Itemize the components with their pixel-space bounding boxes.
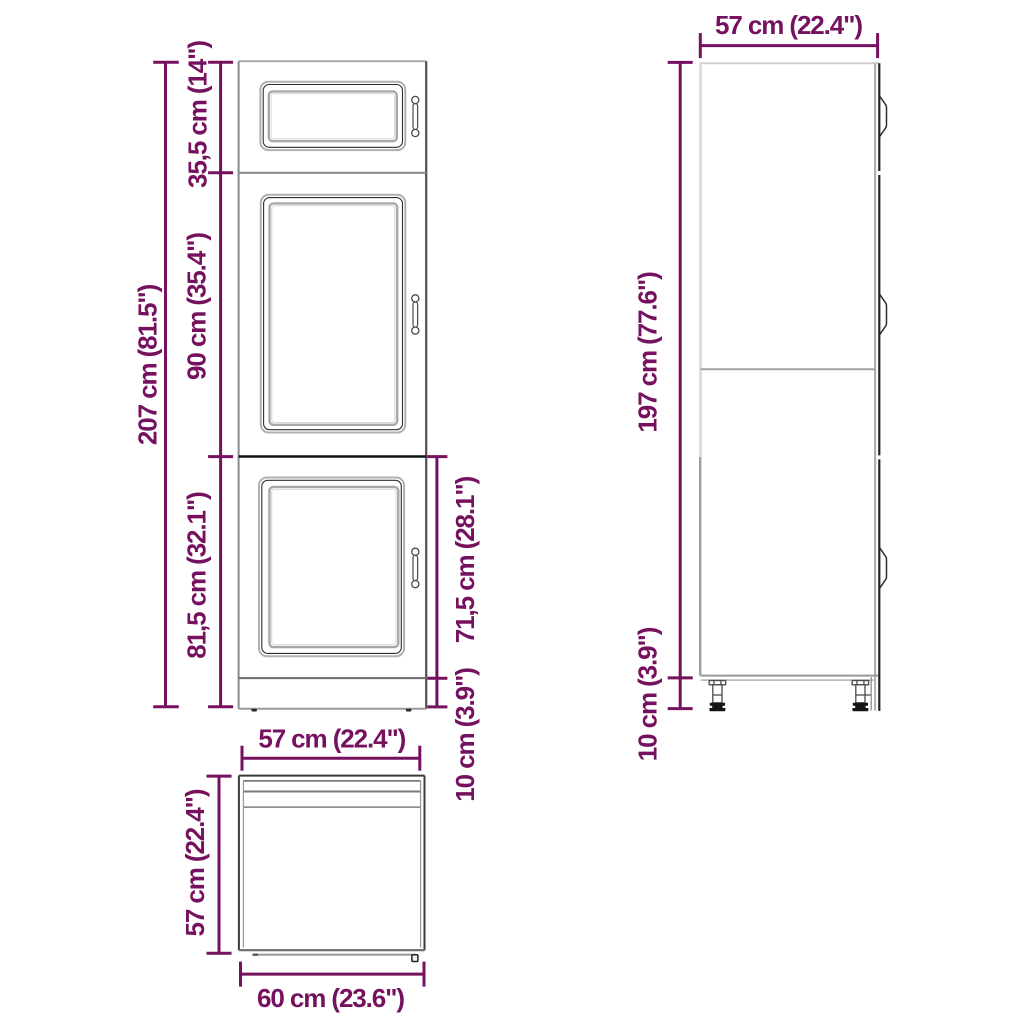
svg-text:81,5 cm (32.1"): 81,5 cm (32.1") [182, 492, 212, 659]
svg-text:10 cm (3.9"): 10 cm (3.9") [450, 668, 480, 802]
svg-text:10 cm (3.9"): 10 cm (3.9") [633, 627, 663, 761]
svg-text:57 cm (22.4"): 57 cm (22.4") [180, 789, 210, 936]
svg-text:197 cm (77.6"): 197 cm (77.6") [633, 272, 663, 433]
svg-text:207 cm (81.5"): 207 cm (81.5") [133, 284, 163, 445]
svg-text:57 cm (22.4"): 57 cm (22.4") [715, 10, 862, 40]
svg-text:57 cm (22.4"): 57 cm (22.4") [258, 724, 405, 754]
svg-text:60 cm (23.6"): 60 cm (23.6") [257, 983, 404, 1013]
svg-text:35,5 cm (14"): 35,5 cm (14") [183, 41, 213, 188]
svg-text:90 cm (35.4"): 90 cm (35.4") [182, 233, 212, 380]
svg-text:71,5 cm (28.1"): 71,5 cm (28.1") [450, 476, 480, 643]
